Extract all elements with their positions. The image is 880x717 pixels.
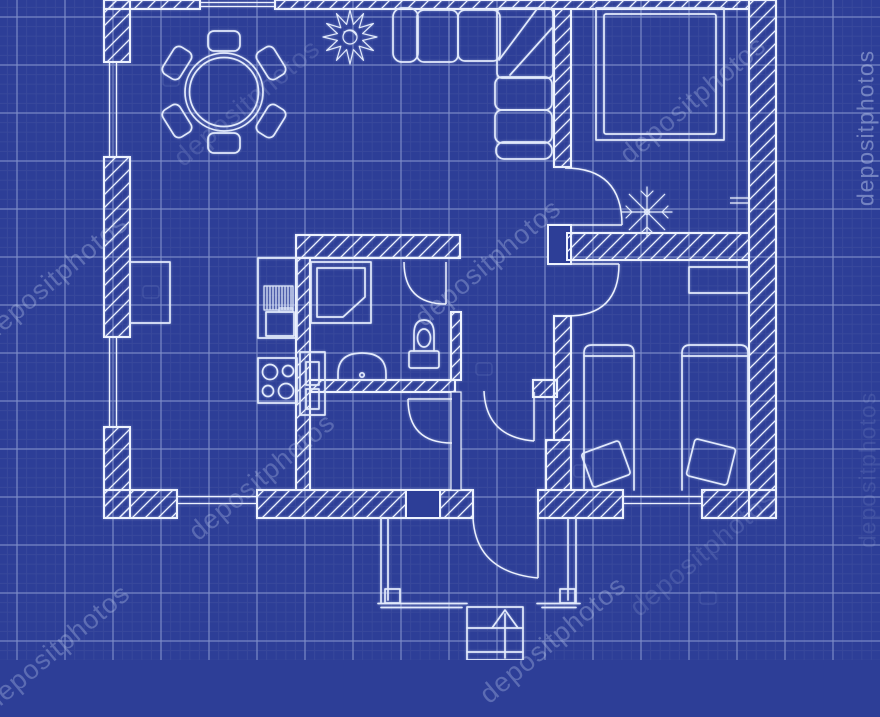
wall-pier bbox=[451, 392, 461, 490]
blueprint-stock-image: depositphotos depositphotos depositphoto… bbox=[0, 0, 880, 660]
door-jamb bbox=[406, 490, 440, 518]
plant-2-icon bbox=[622, 187, 672, 237]
blueprint-floor-plan bbox=[0, 0, 880, 660]
